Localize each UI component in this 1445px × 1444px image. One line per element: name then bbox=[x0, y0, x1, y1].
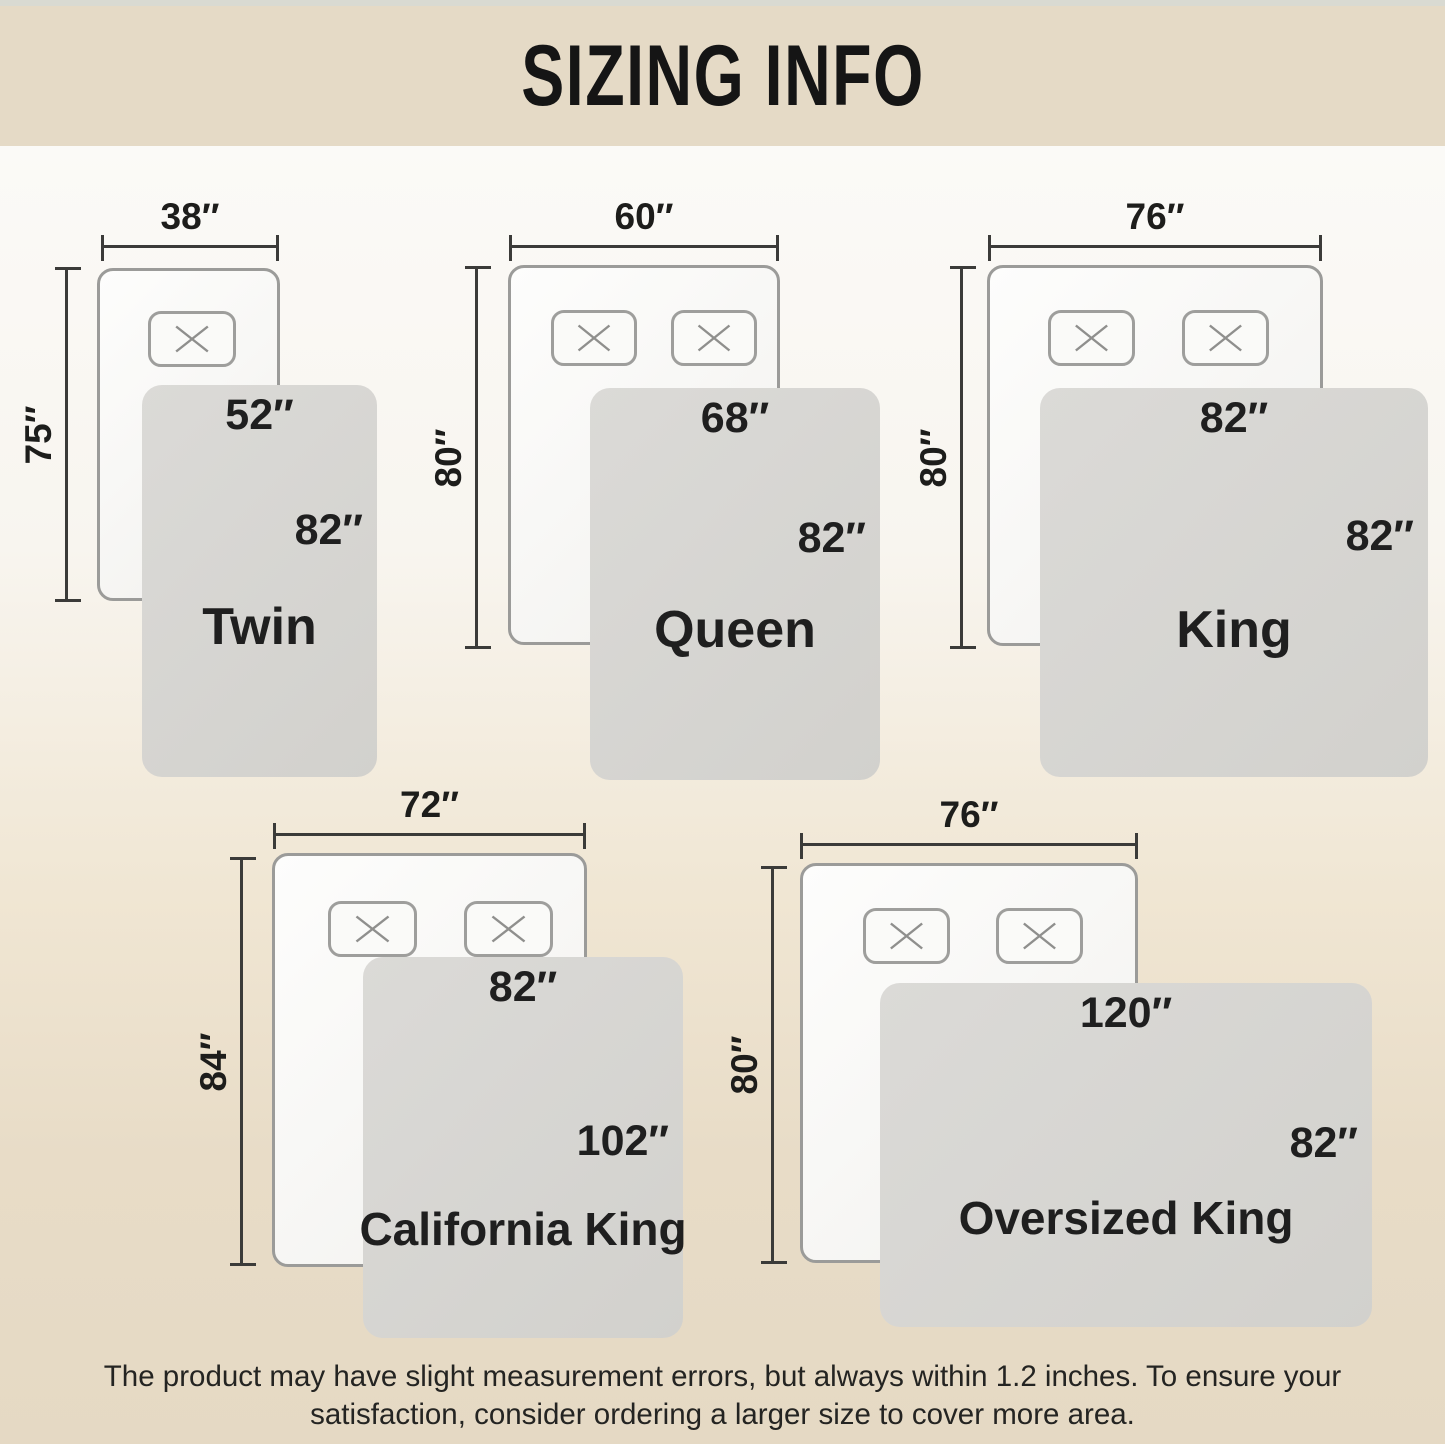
bed-size-name: King bbox=[1040, 598, 1428, 664]
mattress-width-label: 76″ bbox=[940, 794, 999, 836]
blanket-length-label: 82″ bbox=[1290, 1119, 1358, 1168]
header-band: SIZING INFO bbox=[0, 6, 1445, 146]
bed-size-name: California King bbox=[353, 1201, 693, 1259]
blanket-width-label: 52″ bbox=[142, 391, 377, 440]
blanket-length-label: 82″ bbox=[295, 506, 363, 555]
mattress-length-label: 75″ bbox=[18, 405, 60, 464]
mattress-width-dimension: 38″ bbox=[102, 245, 278, 248]
pillow bbox=[328, 901, 417, 957]
blanket-length-label: 82″ bbox=[798, 514, 866, 563]
mattress-width-dimension: 72″ bbox=[274, 833, 585, 836]
pillow bbox=[148, 311, 236, 367]
blanket: 120″ 82″ Oversized King bbox=[880, 983, 1372, 1327]
pillow-x-icon bbox=[1185, 313, 1266, 363]
pillow-x-icon bbox=[866, 911, 947, 961]
mattress-length-dimension: 75″ bbox=[65, 268, 68, 601]
blanket-width-label: 82″ bbox=[363, 963, 683, 1012]
blanket-length-label: 102″ bbox=[577, 1117, 669, 1166]
mattress-width-dimension: 76″ bbox=[989, 245, 1321, 248]
mattress-width-label: 76″ bbox=[1126, 196, 1185, 238]
bed-size-name: Oversized King bbox=[956, 1190, 1296, 1248]
mattress-length-dimension: 80″ bbox=[475, 267, 478, 648]
pillow bbox=[1182, 310, 1269, 366]
mattress-length-dimension: 80″ bbox=[960, 267, 963, 648]
mattress-length-dimension: 84″ bbox=[240, 858, 243, 1265]
blanket: 82″ 82″ King bbox=[1040, 388, 1428, 777]
pillow bbox=[863, 908, 950, 964]
mattress-width-label: 60″ bbox=[615, 196, 674, 238]
mattress-width-label: 38″ bbox=[161, 196, 220, 238]
blanket-width-label: 120″ bbox=[880, 989, 1372, 1038]
pillow-x-icon bbox=[1051, 313, 1132, 363]
mattress-length-dimension: 80″ bbox=[771, 867, 774, 1263]
pillow bbox=[464, 901, 553, 957]
footnote-text: The product may have slight measurement … bbox=[47, 1358, 1399, 1435]
mattress-length-label: 80″ bbox=[428, 428, 470, 487]
mattress-length-label: 80″ bbox=[724, 1036, 766, 1095]
bed-size-name: Twin bbox=[142, 595, 377, 661]
blanket: 52″ 82″ Twin bbox=[142, 385, 377, 777]
pillow bbox=[1048, 310, 1135, 366]
mattress-width-dimension: 76″ bbox=[801, 843, 1137, 846]
sizing-info-infographic: SIZING INFO 38″ 75″ 52″ 82″ Twin 60″ 80″ bbox=[0, 0, 1445, 1444]
mattress-length-label: 84″ bbox=[193, 1032, 235, 1091]
mattress-length-label: 80″ bbox=[913, 428, 955, 487]
page-title: SIZING INFO bbox=[521, 27, 925, 126]
pillow-x-icon bbox=[999, 911, 1080, 961]
blanket-width-label: 82″ bbox=[1040, 394, 1428, 443]
pillow bbox=[671, 310, 757, 366]
blanket: 68″ 82″ Queen bbox=[590, 388, 880, 780]
pillow-x-icon bbox=[674, 313, 754, 363]
blanket: 82″ 102″ California King bbox=[363, 957, 683, 1338]
bed-size-name: Queen bbox=[590, 598, 880, 664]
footnote-area: The product may have slight measurement … bbox=[0, 1358, 1445, 1435]
pillow bbox=[996, 908, 1083, 964]
pillow-x-icon bbox=[467, 904, 550, 954]
pillow-x-icon bbox=[554, 313, 634, 363]
blanket-width-label: 68″ bbox=[590, 394, 880, 443]
blanket-length-label: 82″ bbox=[1346, 512, 1414, 561]
mattress-width-label: 72″ bbox=[400, 784, 459, 826]
pillow bbox=[551, 310, 637, 366]
mattress-width-dimension: 60″ bbox=[510, 245, 778, 248]
pillow-x-icon bbox=[151, 314, 233, 364]
pillow-x-icon bbox=[331, 904, 414, 954]
